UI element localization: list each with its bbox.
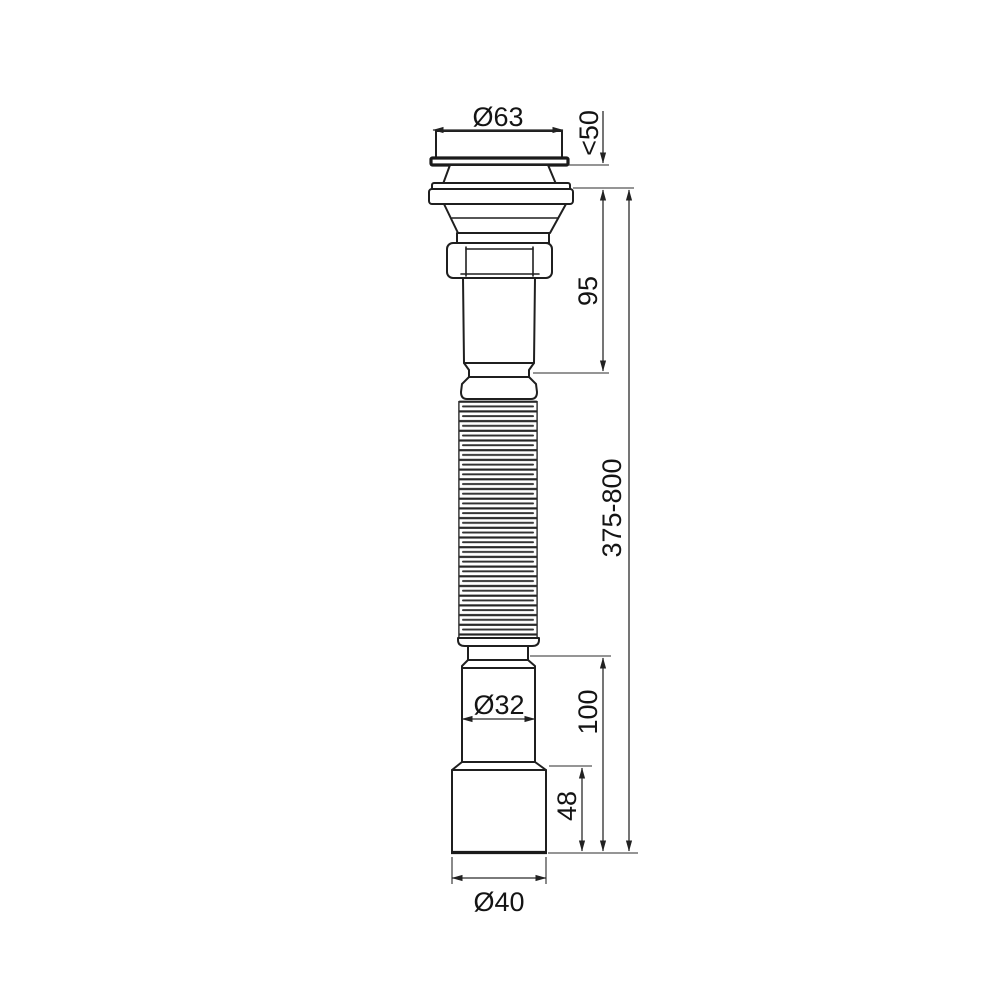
label-sleeve-height: 48 (552, 791, 582, 821)
outlet-sleeve (452, 770, 546, 852)
label-top-diameter: Ø63 (472, 102, 523, 132)
label-outlet-height: 100 (573, 689, 603, 734)
outlet-neck (468, 646, 528, 660)
tailpipe (463, 278, 535, 363)
outlet-step (462, 660, 535, 668)
flange-plate (429, 189, 573, 204)
label-strainer-height: <50 (574, 110, 604, 156)
label-outlet-diameter: Ø32 (473, 690, 524, 720)
hose-top-collar (461, 377, 537, 399)
strainer-cap (436, 131, 562, 158)
label-total-length: 375-800 (597, 458, 627, 557)
label-upper-height: 95 (573, 276, 603, 306)
label-end-diameter: Ø40 (473, 887, 524, 917)
corrugated-hose (459, 400, 538, 645)
retainer-ring (457, 233, 549, 243)
outlet-shoulder (452, 762, 546, 770)
tailpipe-neck (464, 363, 534, 377)
drawing-canvas: Ø63 <50 95 375-800 Ø32 100 48 Ø40 (0, 0, 1000, 1000)
technical-drawing: Ø63 <50 95 375-800 Ø32 100 48 Ø40 (0, 0, 1000, 1000)
upper-cone (443, 165, 556, 184)
drain-assembly (429, 131, 573, 853)
strainer-cap-base (431, 158, 568, 165)
hose-bottom-collar (458, 638, 539, 646)
